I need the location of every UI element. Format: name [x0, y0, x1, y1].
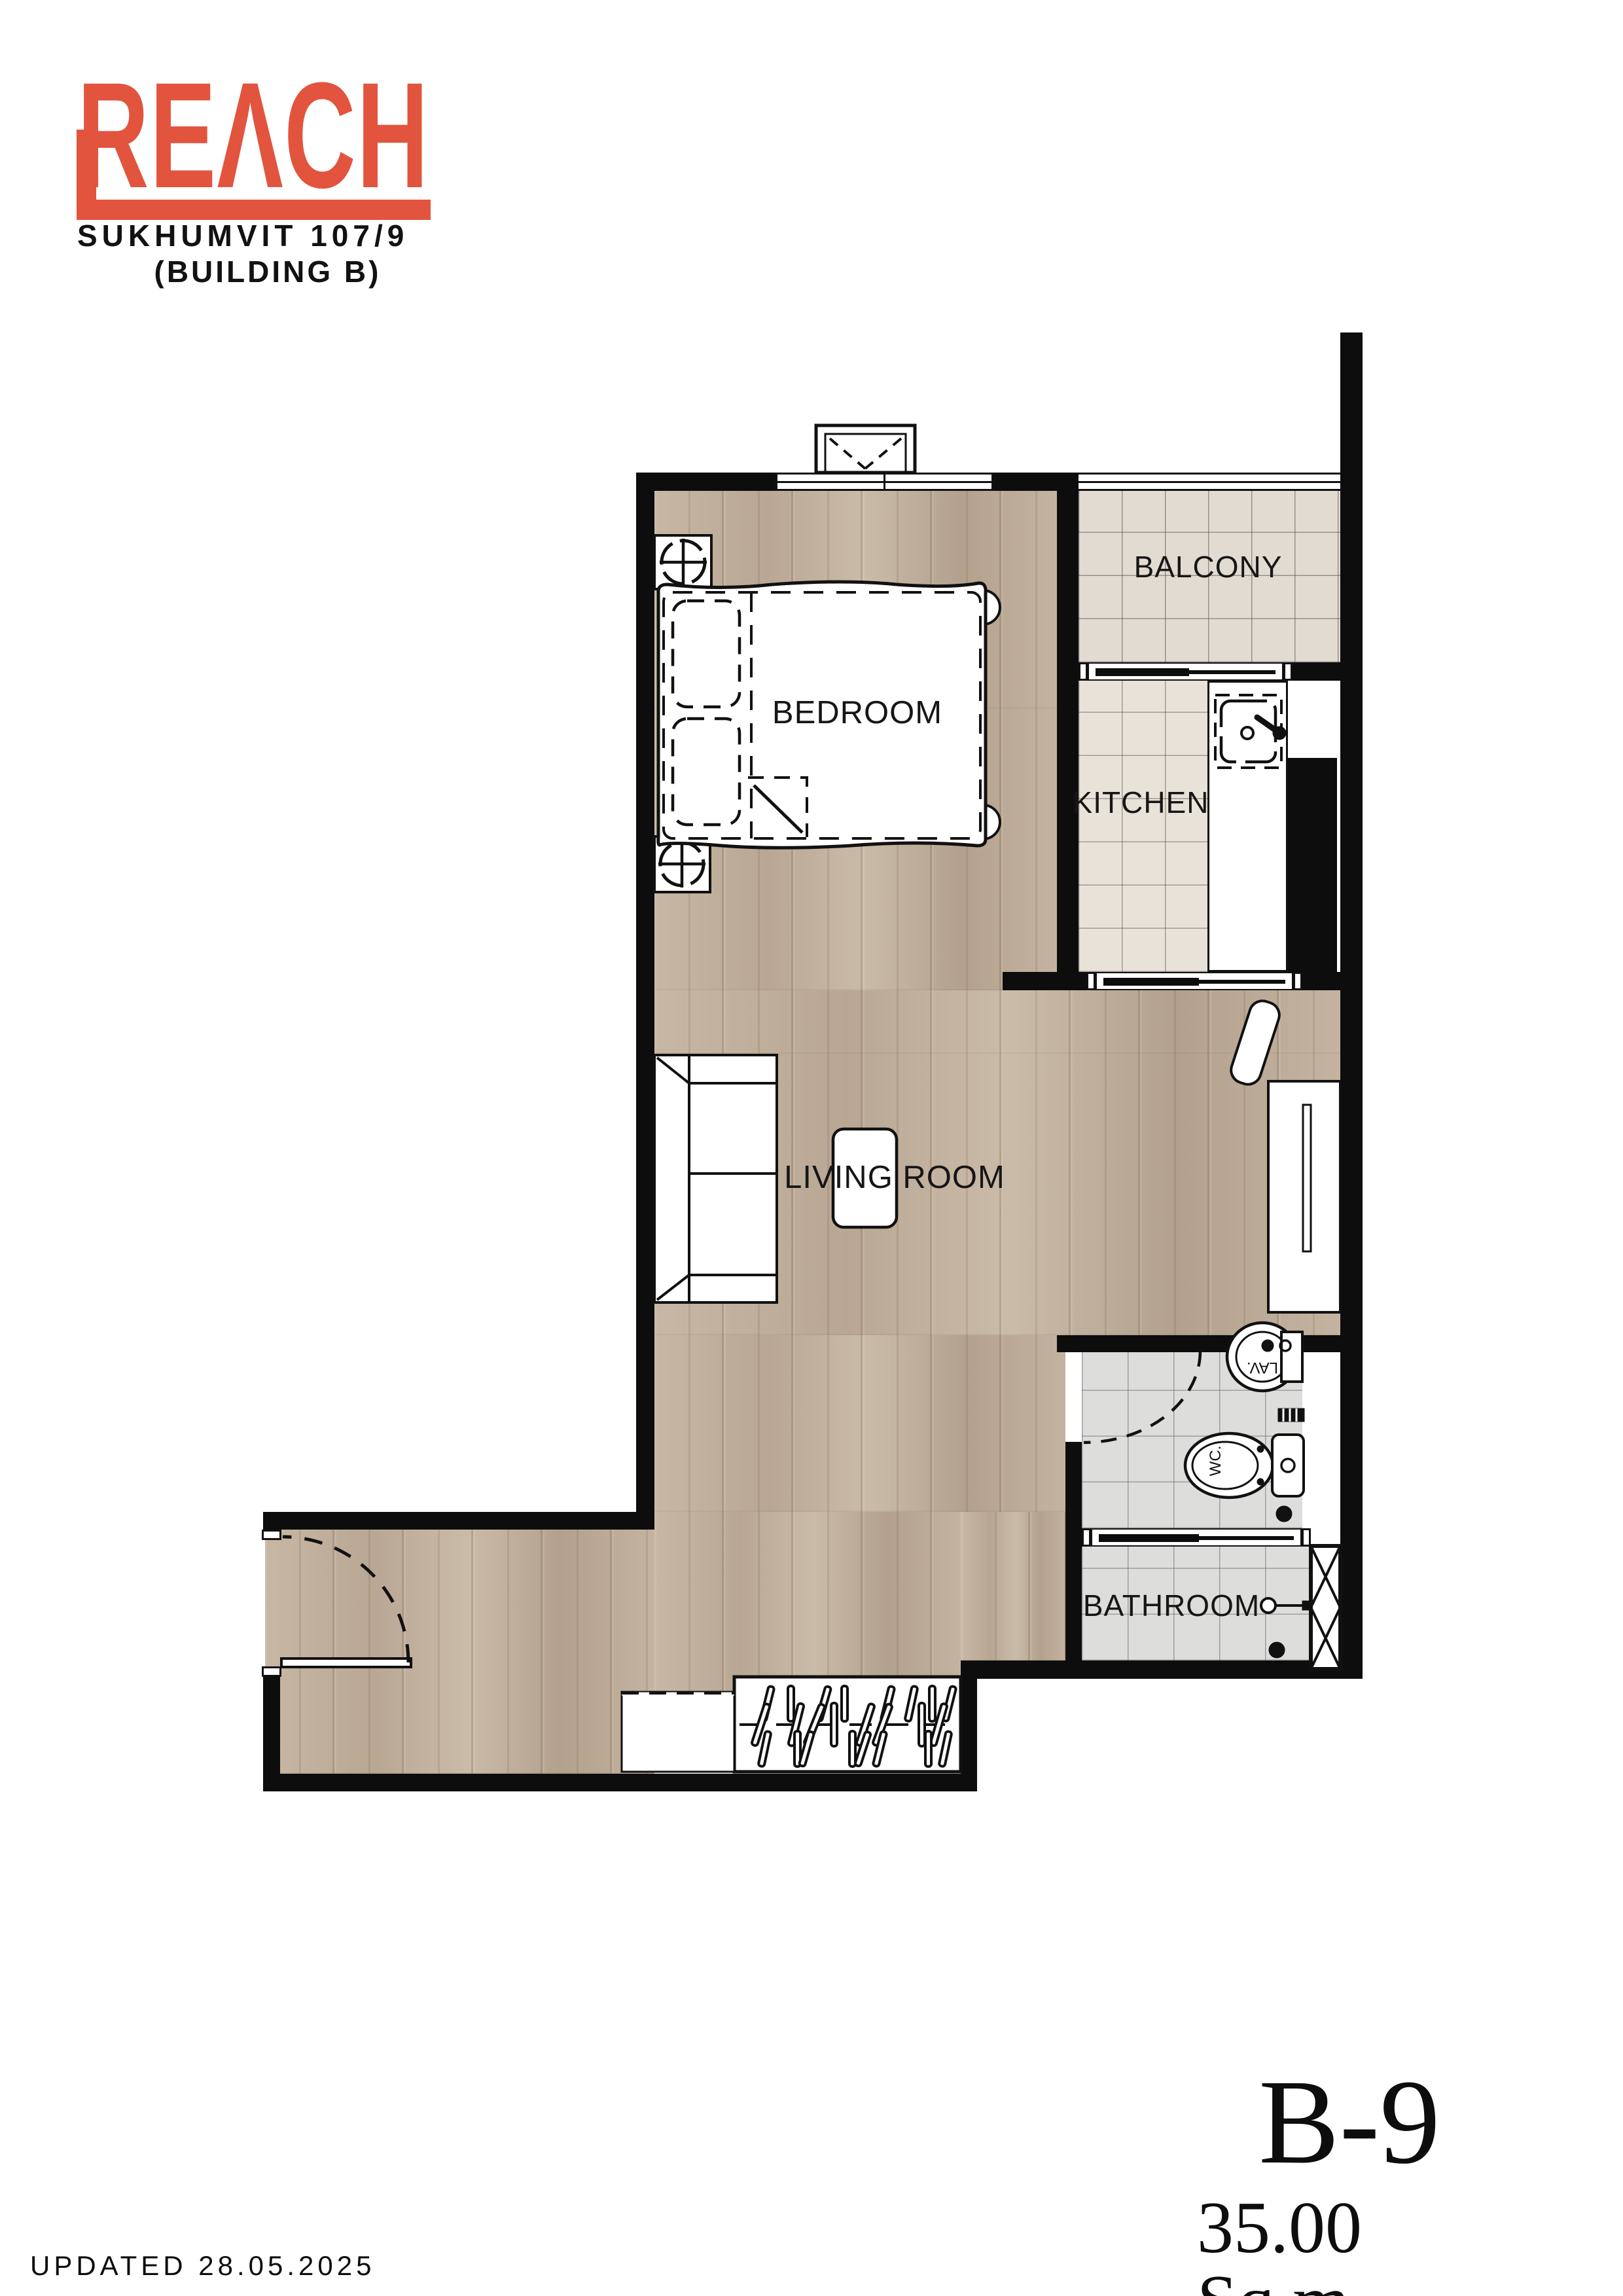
towel-bar-icon [1278, 1408, 1304, 1422]
unit-area: 35.00 Sq.m. [1197, 2191, 1481, 2296]
toilet-label: WC. [1207, 1446, 1224, 1477]
kitchen-sink-icon [1215, 695, 1286, 768]
bedroom-label: BEDROOM [772, 694, 942, 731]
plan-linework: LAV. WC. [0, 0, 1623, 2296]
balcony-label: BALCONY [1134, 549, 1283, 584]
bathroom-label: BATHROOM [1083, 1588, 1260, 1623]
floor-drain-icon [1269, 1642, 1285, 1658]
updated-date: UPDATED 28.05.2025 [30, 2252, 375, 2280]
entry-door-swing [283, 1537, 408, 1662]
kitchen-label: KITCHEN [1073, 785, 1209, 820]
shower-valve-icon [1261, 1598, 1309, 1613]
bathroom-door-swing [1084, 1351, 1200, 1443]
wardrobe [734, 1677, 961, 1772]
shoe-cabinet [622, 1692, 734, 1772]
basin-label: LAV. [1247, 1359, 1278, 1376]
floorplan-page: REΛCH SUKHUMVIT 107/9 (BUILDING B) [0, 0, 1623, 2296]
living-room-label: LIVING ROOM [784, 1159, 1005, 1196]
fan-coil-icon [654, 535, 711, 589]
window-box-icon [816, 425, 915, 473]
unit-code: B-9 [1258, 2062, 1440, 2183]
chair [1228, 997, 1283, 1088]
toilet-icon: WC. [1185, 1433, 1304, 1498]
desk [1268, 1081, 1340, 1312]
shaft-x-icon [1311, 1546, 1340, 1669]
floor-drain-icon [1276, 1506, 1292, 1522]
basin-icon: LAV. [1227, 1323, 1302, 1391]
sofa [654, 1055, 777, 1302]
